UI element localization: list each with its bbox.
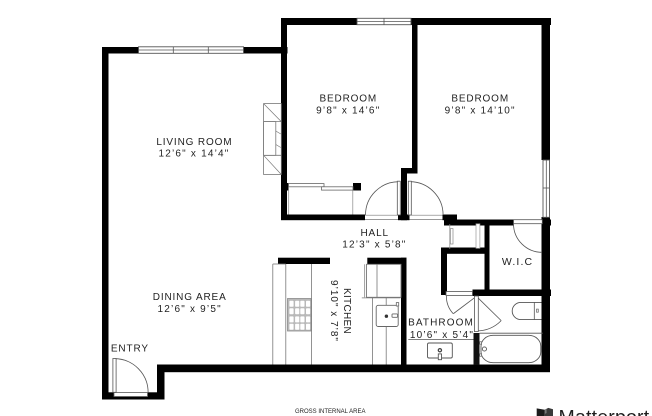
svg-text:BATHROOM: BATHROOM: [408, 317, 474, 328]
svg-text:BEDROOM: BEDROOM: [319, 94, 377, 105]
svg-text:12’6" x 9’5": 12’6" x 9’5": [158, 304, 222, 315]
svg-text:ENTRY: ENTRY: [111, 344, 149, 355]
svg-text:DINING AREA: DINING AREA: [153, 292, 227, 303]
svg-text:12’6" x 14’4": 12’6" x 14’4": [158, 149, 229, 160]
svg-text:Matterport: Matterport: [559, 406, 650, 416]
svg-text:9’10" x 7’8": 9’10" x 7’8": [328, 280, 339, 342]
svg-text:9’8" x 14’6": 9’8" x 14’6": [316, 106, 380, 117]
svg-text:LIVING ROOM: LIVING ROOM: [156, 137, 232, 148]
svg-text:W.I.C: W.I.C: [502, 256, 533, 268]
svg-text:BEDROOM: BEDROOM: [451, 94, 509, 105]
svg-text:HALL: HALL: [360, 228, 388, 239]
svg-text:10’6" x 5’4": 10’6" x 5’4": [410, 330, 474, 341]
svg-text:9’8" x 14’10": 9’8" x 14’10": [445, 106, 516, 117]
svg-text:12’3" x 5’8": 12’3" x 5’8": [342, 239, 406, 250]
svg-text:KITCHEN: KITCHEN: [341, 288, 352, 334]
svg-text:GROSS INTERNAL AREA: GROSS INTERNAL AREA: [295, 409, 365, 415]
